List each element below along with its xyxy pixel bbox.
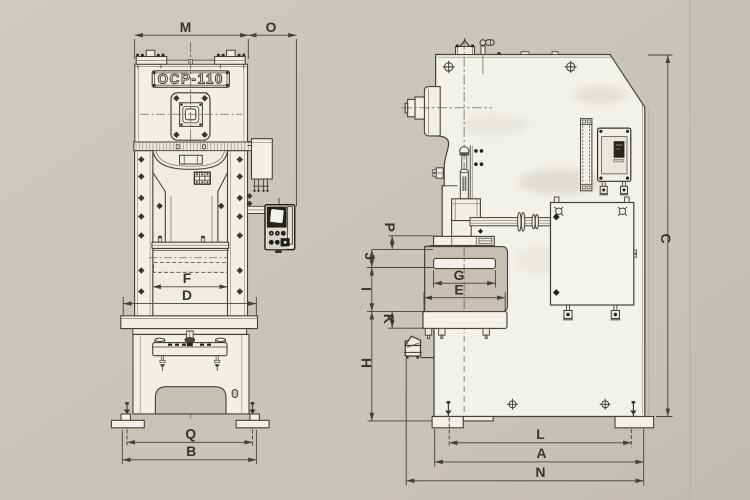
svg-text:L: L (536, 427, 544, 442)
svg-text:M: M (180, 20, 192, 35)
svg-text:G: G (454, 268, 465, 283)
svg-text:N: N (536, 465, 546, 480)
svg-text:Q: Q (185, 427, 196, 442)
svg-text:H: H (359, 358, 374, 368)
svg-text:O: O (266, 20, 277, 35)
svg-text:C: C (658, 234, 673, 244)
svg-text:I: I (359, 287, 374, 291)
svg-text:K: K (381, 314, 396, 324)
svg-text:A: A (537, 446, 547, 461)
svg-text:E: E (454, 283, 463, 298)
svg-text:P: P (382, 223, 397, 232)
svg-text:D: D (182, 288, 192, 303)
svg-text:F: F (183, 271, 191, 286)
svg-text:B: B (186, 444, 196, 459)
svg-text:J: J (362, 253, 377, 261)
